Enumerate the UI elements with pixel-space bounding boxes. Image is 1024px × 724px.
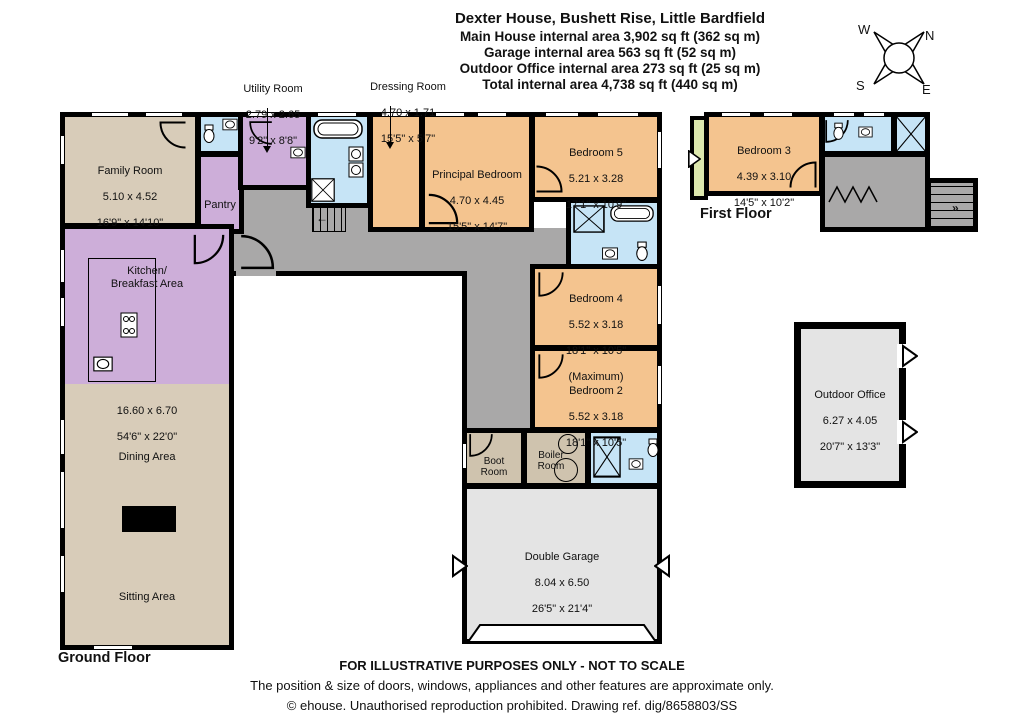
toilet-icon — [634, 241, 650, 262]
room-dims-metric: 5.21 x 3.28 — [536, 173, 656, 186]
wardrobe-icon — [828, 184, 878, 204]
room-dims-metric: 16.60 x 6.70 — [72, 405, 222, 418]
plan-footer: FOR ILLUSTRATIVE PURPOSES ONLY - NOT TO … — [0, 656, 1024, 716]
outdoor-office-label: Outdoor Office 6.27 x 4.05 20'7" x 13'3" — [794, 376, 906, 467]
area-total: Total internal area 4,738 sq ft (440 sq … — [400, 77, 820, 93]
compass-east: E — [922, 82, 931, 97]
room-name: Bedroom 2 — [536, 385, 656, 398]
window — [60, 420, 65, 454]
floor-plan-canvas: » — [0, 0, 1024, 724]
room-name: Bedroom 4 — [536, 293, 656, 306]
dining-area-label: Dining Area — [72, 438, 222, 477]
area-main-house: Main House internal area 3,902 sq ft (36… — [400, 29, 820, 45]
kitchen-label: Kitchen/ Breakfast Area — [72, 252, 222, 304]
window — [864, 112, 884, 117]
utility-room-label: Utility Room 2.79 x 2.65 9'2" x 8'8" — [218, 70, 328, 161]
window — [60, 472, 65, 528]
room-name: Family Room — [70, 165, 190, 178]
room-dims-imperial: 20'7" x 13'3" — [794, 441, 906, 454]
boiler-room-label: Boiler Room — [522, 438, 580, 484]
window — [657, 366, 662, 404]
room-dims-metric: 5.52 x 3.18 — [536, 319, 656, 332]
window — [60, 556, 65, 592]
wall-segment — [276, 271, 462, 276]
pantry-label: Pantry — [196, 186, 244, 225]
window — [764, 112, 792, 117]
sink-icon — [600, 247, 620, 260]
hallway-corridor — [462, 266, 530, 430]
door-arc — [158, 120, 188, 150]
stairs-direction-arrow: ← — [316, 212, 328, 224]
room-dims-metric: 8.04 x 6.50 — [472, 577, 652, 590]
room-name: Sitting Area — [72, 591, 222, 604]
room-dims-metric: 6.27 x 4.05 — [794, 415, 906, 428]
footer-disclaimer: FOR ILLUSTRATIVE PURPOSES ONLY - NOT TO … — [0, 656, 1024, 676]
room-dims-metric: 5.10 x 4.52 — [70, 191, 190, 204]
open-door-icon — [452, 554, 468, 578]
stairs-direction-arrow: » — [952, 202, 959, 214]
room-dims-imperial: 9'2" x 8'8" — [218, 135, 328, 148]
footer-approximation-note: The position & size of doors, windows, a… — [0, 676, 1024, 696]
room-name: Pantry — [196, 199, 244, 212]
window — [546, 112, 578, 117]
wall-segment — [462, 271, 467, 430]
label-arrow — [390, 106, 391, 146]
area-outdoor-office: Outdoor Office internal area 273 sq ft (… — [400, 61, 820, 77]
compass-north: N — [925, 28, 934, 43]
bedroom5-label: Bedroom 5 5.21 x 3.28 17'1" x 10'9" — [536, 134, 656, 225]
room-name: Double Garage — [472, 551, 652, 564]
window — [657, 132, 662, 168]
window — [146, 112, 182, 117]
fireplace — [122, 506, 176, 532]
room-name: Kitchen/ Breakfast Area — [72, 265, 222, 291]
toilet-icon — [202, 124, 216, 144]
room-name: Bedroom 3 — [704, 145, 824, 158]
room-name: Principal Bedroom — [417, 169, 537, 182]
room-name: Utility Room — [218, 83, 328, 96]
window — [657, 286, 662, 324]
family-room-label: Family Room 5.10 x 4.52 16'9" x 14'10" — [70, 152, 190, 243]
label-arrow — [267, 108, 268, 150]
footer-copyright: © ehouse. Unauthorised reproduction proh… — [0, 696, 1024, 716]
sink-icon — [92, 356, 114, 372]
window — [92, 112, 128, 117]
room-dims-imperial: 16'9" x 14'10" — [70, 217, 190, 230]
open-door-icon — [902, 344, 918, 368]
room-dims-imperial: 15'5" x 14'7" — [417, 221, 537, 234]
shower-icon — [311, 178, 335, 202]
room-dims-metric: 2.79 x 2.65 — [218, 109, 328, 122]
plan-header: Dexter House, Bushett Rise, Little Bardf… — [400, 10, 820, 93]
boot-room-label: Boot Room — [466, 444, 522, 490]
open-door-icon — [654, 554, 670, 578]
room-name: Bedroom 5 — [536, 147, 656, 160]
hob-icon — [120, 312, 138, 338]
room-name: Boot Room — [466, 456, 522, 479]
window — [834, 112, 854, 117]
door-arc — [238, 233, 276, 271]
window — [60, 136, 65, 164]
compass-south: S — [856, 78, 865, 93]
window — [598, 112, 638, 117]
open-door-icon — [688, 150, 701, 168]
shower-icon — [896, 116, 926, 152]
sitting-area-label: Sitting Area — [72, 578, 222, 617]
room-dims-imperial: 26'5" x 21'4" — [472, 603, 652, 616]
room-dims-imperial: 17'1" x 10'9" — [536, 199, 656, 212]
area-garage: Garage internal area 563 sq ft (52 sq m) — [400, 45, 820, 61]
sink-icon — [858, 126, 873, 138]
room-dims-metric: 4.70 x 4.45 — [417, 195, 537, 208]
room-dims-imperial: 15'5" x 5'7" — [352, 133, 464, 146]
window — [60, 250, 65, 282]
room-name: Dining Area — [72, 451, 222, 464]
principal-bedroom-label: Principal Bedroom 4.70 x 4.45 15'5" x 14… — [417, 156, 537, 247]
window — [722, 112, 750, 117]
compass-west: W — [858, 22, 870, 37]
garage-label: Double Garage 8.04 x 6.50 26'5" x 21'4" — [472, 538, 652, 629]
room-dims-imperial: 18'1" x 10'5" — [536, 345, 656, 358]
room-dims-metric: 5.52 x 3.18 — [536, 411, 656, 424]
first-floor-label: First Floor — [700, 206, 772, 222]
room-dims-metric: 4.39 x 3.10 — [704, 171, 824, 184]
window — [60, 298, 65, 326]
window — [478, 112, 506, 117]
room-name: Boiler Room — [522, 450, 580, 473]
toilet-icon — [832, 122, 845, 141]
room-name: Outdoor Office — [794, 389, 906, 402]
property-title: Dexter House, Bushett Rise, Little Bardf… — [400, 10, 820, 27]
room-dims-metric: 4.70 x 1.71 — [352, 107, 464, 120]
